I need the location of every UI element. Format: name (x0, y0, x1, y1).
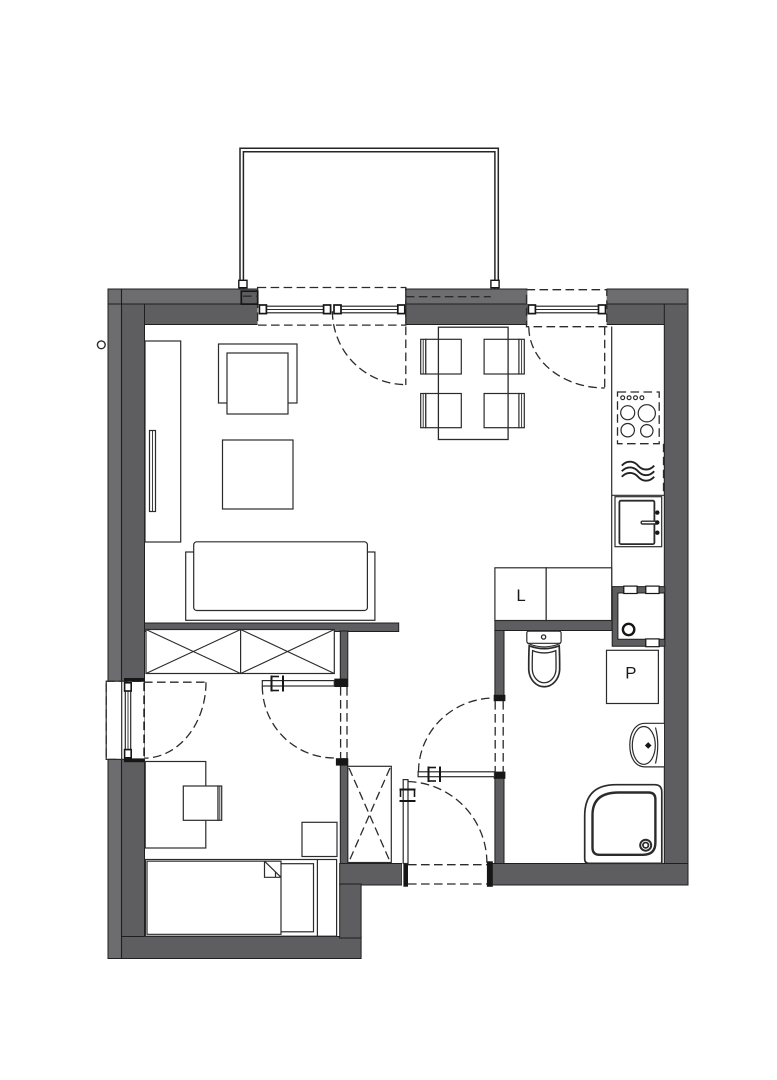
svg-text:L: L (516, 586, 525, 605)
svg-text:P: P (625, 664, 636, 683)
